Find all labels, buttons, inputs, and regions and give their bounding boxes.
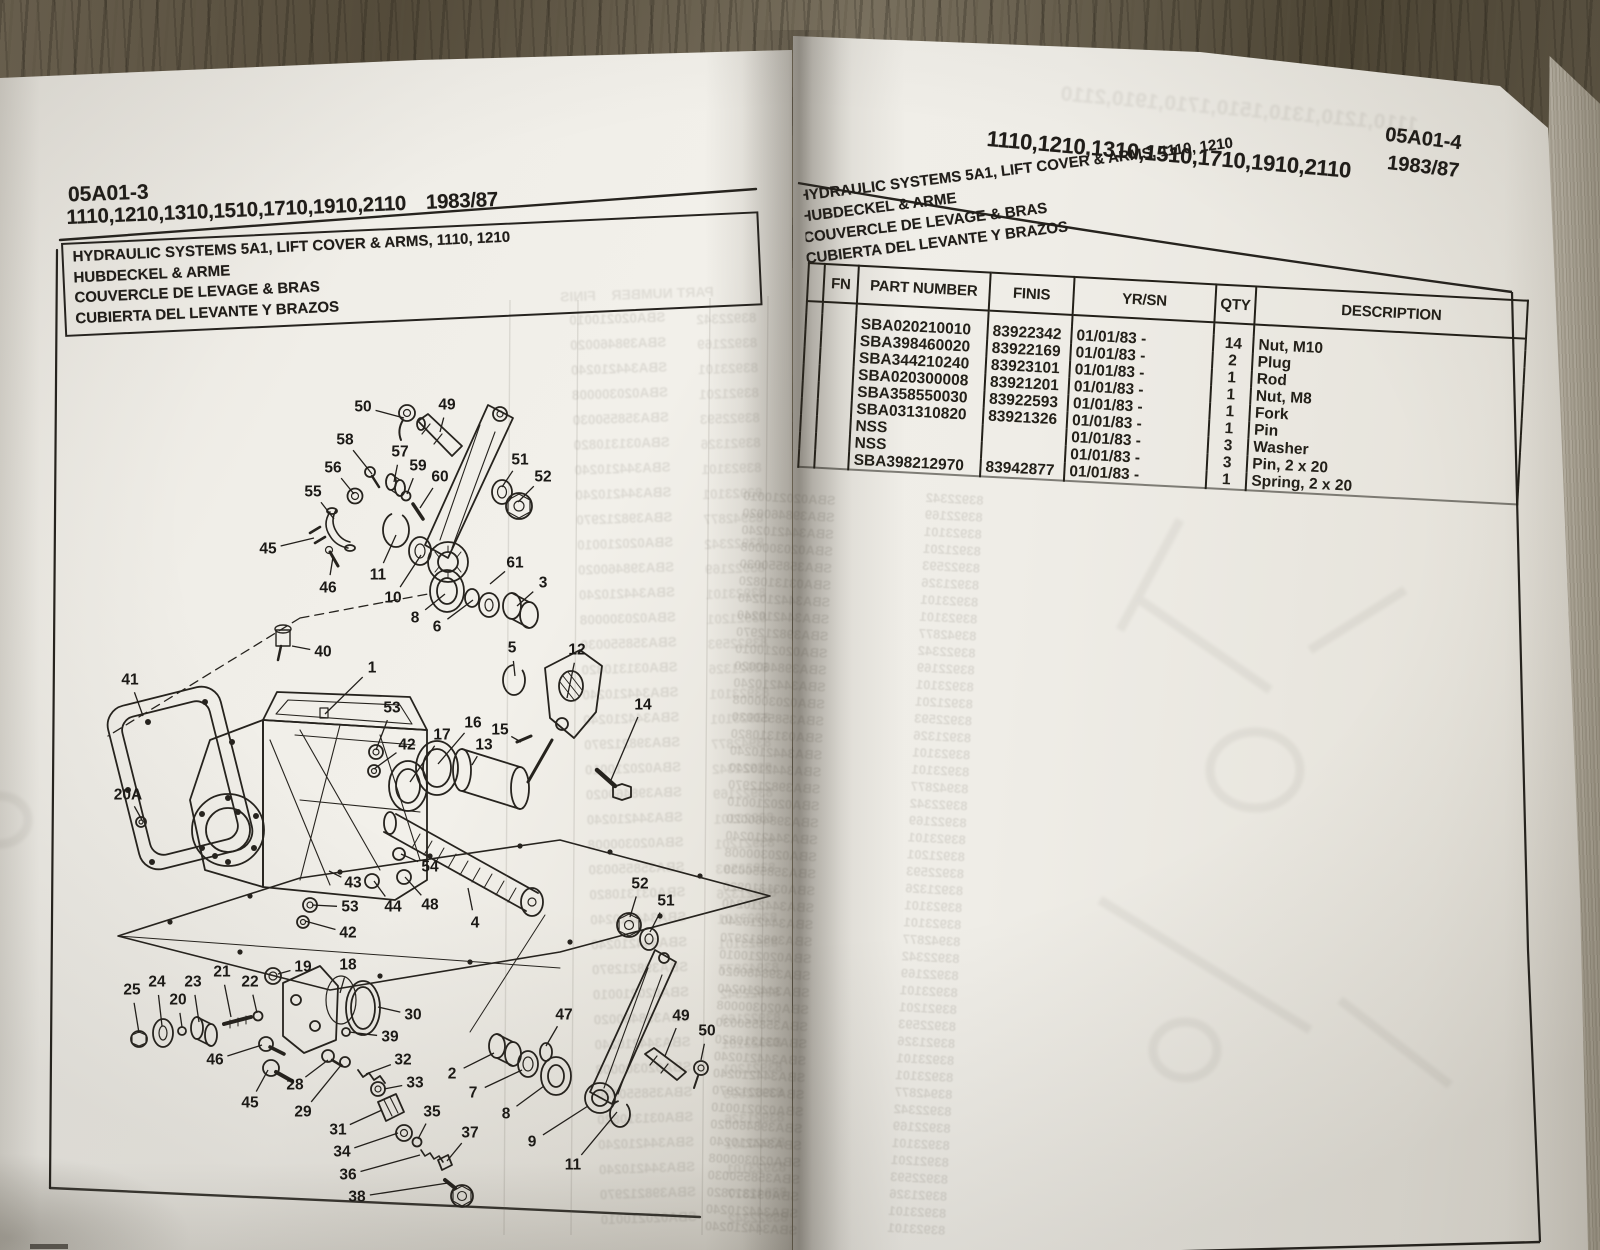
cell-qty: 3: [1207, 453, 1248, 472]
book-spine-shadow: [742, 30, 852, 1250]
column-header-qty: QTY: [1214, 284, 1256, 324]
cell-qty: 2: [1212, 351, 1253, 370]
photo-of-parts-manual: { "left_page": { "section_code": "05A01-…: [0, 0, 1600, 1250]
cell-qty: 1: [1209, 402, 1250, 421]
cell-qty: 1: [1208, 419, 1249, 438]
cell-finis: 83942877: [980, 458, 1065, 480]
cell-qty: 1: [1210, 385, 1251, 404]
cell-qty: 3: [1208, 436, 1249, 455]
cell-qty: 1: [1206, 470, 1247, 490]
column-header-finis: FINIS: [989, 273, 1075, 315]
cell-qty: 1: [1211, 368, 1252, 387]
left-years: 1983/87: [425, 188, 498, 214]
parts-table: FN PART NUMBER FINIS YR/SN QTY DESCRIPTI…: [797, 262, 1529, 506]
cell-qty: 14: [1213, 334, 1254, 353]
